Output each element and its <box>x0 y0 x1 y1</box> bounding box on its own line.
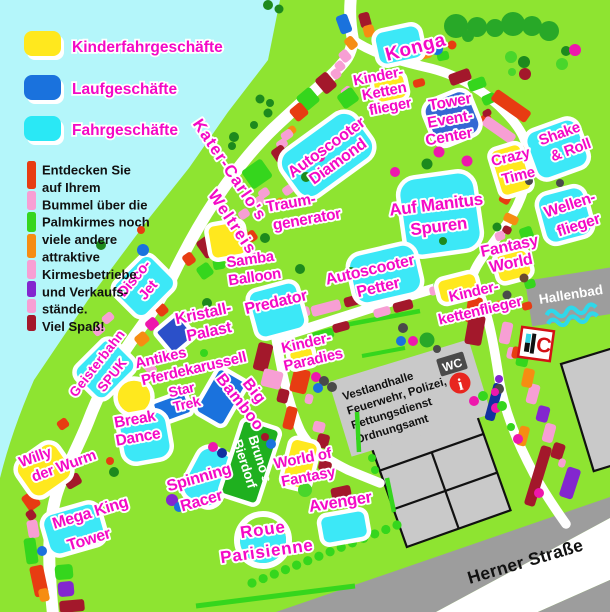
svg-text:C: C <box>535 333 553 358</box>
svg-text:Fahrgeschäfte: Fahrgeschäfte <box>72 122 178 139</box>
svg-text:Palmkirmes noch: Palmkirmes noch <box>42 215 150 230</box>
svg-text:stände.: stände. <box>42 302 88 317</box>
svg-text:Viel Spaß!: Viel Spaß! <box>42 319 105 334</box>
svg-text:viele andere: viele andere <box>42 232 117 247</box>
svg-text:Kirmesbetriebe: Kirmesbetriebe <box>42 267 137 282</box>
svg-text:Kinderfahrgeschäfte: Kinderfahrgeschäfte <box>72 39 223 56</box>
svg-text:Entdecken Sie: Entdecken Sie <box>42 163 131 178</box>
svg-text:auf Ihrem: auf Ihrem <box>42 180 101 195</box>
svg-text:Bummel über die: Bummel über die <box>42 197 147 212</box>
svg-text:attraktive: attraktive <box>42 250 100 265</box>
svg-text:und Verkaufs-: und Verkaufs- <box>42 284 128 299</box>
svg-text:Laufgeschäfte: Laufgeschäfte <box>72 81 177 98</box>
